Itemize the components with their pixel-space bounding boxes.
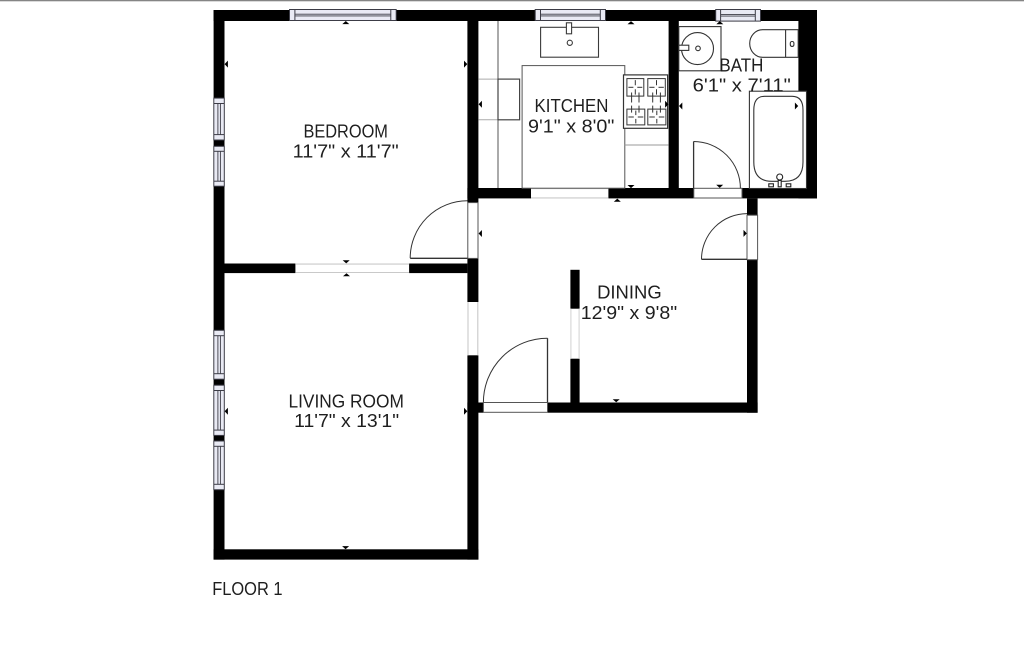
svg-text:LIVING ROOM: LIVING ROOM: [289, 392, 404, 412]
svg-text:11'7" x 13'1": 11'7" x 13'1": [294, 411, 399, 431]
svg-text:11'7" x 11'7": 11'7" x 11'7": [293, 141, 399, 161]
svg-text:FLOOR 1: FLOOR 1: [212, 579, 282, 599]
svg-text:KITCHEN: KITCHEN: [535, 96, 609, 116]
svg-text:6'1" x 7'11": 6'1" x 7'11": [693, 76, 791, 96]
svg-text:12'9" x 9'8": 12'9" x 9'8": [581, 303, 677, 323]
svg-text:9'1" x 8'0": 9'1" x 8'0": [528, 117, 614, 137]
svg-text:DINING: DINING: [597, 282, 662, 302]
svg-text:BEDROOM: BEDROOM: [303, 122, 388, 142]
svg-text:BATH: BATH: [719, 56, 763, 76]
